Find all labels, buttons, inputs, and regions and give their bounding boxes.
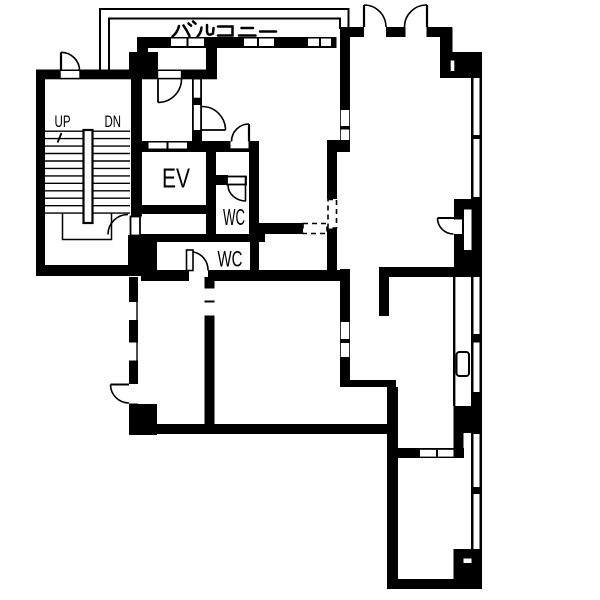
svg-text:UP: UP	[55, 113, 71, 131]
svg-text:WC: WC	[218, 247, 243, 272]
svg-text:DN: DN	[105, 113, 122, 131]
svg-text:EV: EV	[162, 163, 190, 194]
svg-text:WC: WC	[223, 204, 245, 230]
